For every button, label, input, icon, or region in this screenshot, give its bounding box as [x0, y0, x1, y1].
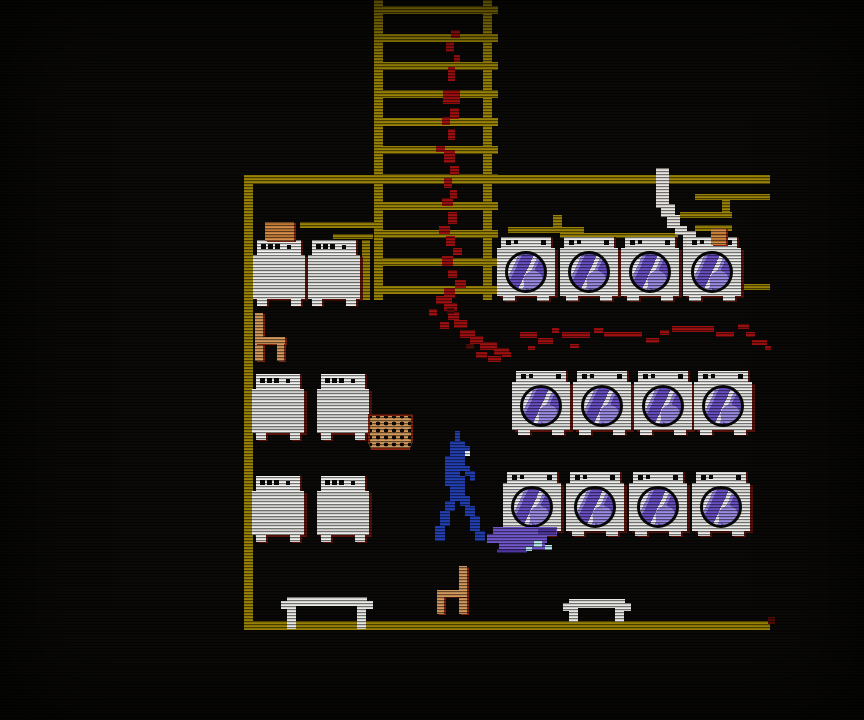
washer-body — [317, 491, 369, 535]
washer-button — [604, 240, 609, 245]
blood-splatter — [439, 226, 450, 234]
blood-splatter — [476, 352, 487, 358]
ladder-rung — [374, 174, 498, 182]
ladder-rung — [374, 286, 498, 294]
wooden-chair — [255, 313, 285, 361]
washer-foot — [606, 530, 618, 536]
washer-foot — [723, 295, 735, 301]
washer-foot — [537, 295, 549, 301]
water-pipe-segment — [333, 234, 373, 239]
blood-splatter — [660, 330, 669, 335]
washer-foot — [566, 295, 578, 301]
washer-foot — [732, 530, 744, 536]
washer-foot — [312, 299, 322, 306]
washing-machine-front-loader — [694, 371, 752, 435]
washer-button — [590, 374, 594, 378]
washer-control-panel — [625, 237, 675, 248]
washer-control-panel — [577, 371, 627, 382]
washing-machine-front-loader — [497, 237, 555, 301]
washer-button — [738, 374, 743, 379]
washer-door-window — [574, 486, 616, 528]
detergent-box — [711, 228, 726, 245]
blood-splatter — [448, 212, 457, 224]
washer-button — [569, 240, 574, 245]
washer-button — [700, 240, 704, 244]
washing-machine-top-loader — [253, 240, 305, 306]
washer-foot — [290, 433, 300, 440]
washer-button — [339, 378, 344, 383]
drain-pipe-segment — [656, 168, 669, 208]
player-character — [435, 431, 485, 541]
washer-button — [665, 240, 670, 245]
washer-button — [651, 374, 655, 378]
washer-control-panel — [256, 374, 300, 389]
washer-foot — [627, 295, 639, 301]
washer-foot — [698, 530, 710, 536]
washing-machine-top-loader — [317, 374, 369, 440]
chair-seat — [437, 590, 467, 597]
washer-button — [512, 475, 517, 480]
washer-button — [692, 240, 697, 245]
washer-button — [736, 475, 741, 480]
washing-machine-top-loader — [317, 476, 369, 542]
washer-foot — [355, 433, 365, 440]
washer-button — [342, 245, 346, 249]
washer-button — [610, 475, 615, 480]
washer-button — [506, 240, 511, 245]
washer-button — [287, 245, 291, 249]
blood-splatter — [451, 30, 460, 38]
washer-button — [339, 480, 344, 485]
folding-bench — [563, 599, 631, 622]
blood-splatter — [594, 328, 603, 333]
blood-splatter — [672, 326, 714, 332]
blood-splatter — [552, 328, 559, 333]
washer-foot — [635, 530, 647, 536]
washer-door-window — [642, 385, 684, 427]
ladder-rung — [374, 202, 498, 210]
washer-button — [268, 244, 273, 249]
chair-seat — [255, 337, 285, 344]
washer-button — [617, 374, 622, 379]
washer-button — [638, 240, 642, 244]
washer-control-panel — [516, 371, 566, 382]
washer-button — [260, 378, 265, 383]
washer-foot — [613, 429, 625, 435]
ladder-rung — [374, 34, 498, 42]
washer-door-window — [505, 251, 547, 293]
washer-foot — [640, 429, 652, 435]
washer-button — [583, 475, 587, 479]
blood-splatter — [716, 332, 734, 337]
washer-button — [316, 244, 321, 249]
washer-button — [727, 240, 732, 245]
washer-control-panel — [256, 476, 300, 491]
washer-button — [275, 244, 280, 249]
washer-body — [252, 389, 304, 433]
washer-control-panel — [501, 237, 551, 248]
washer-control-panel — [698, 371, 748, 382]
blood-splatter — [448, 270, 457, 278]
washer-button — [323, 244, 328, 249]
washer-button — [521, 374, 526, 379]
soap-suds — [534, 541, 542, 547]
washing-machine-front-loader — [560, 237, 618, 301]
water-pipe-segment — [680, 212, 732, 218]
chair-leg — [437, 597, 444, 614]
soap-suds — [545, 545, 552, 550]
blood-splatter — [450, 166, 459, 175]
washer-body — [308, 255, 360, 299]
washer-foot — [256, 535, 266, 542]
washer-button — [547, 475, 552, 480]
bench-top — [569, 599, 625, 608]
washer-button — [267, 378, 272, 383]
blood-splatter — [448, 129, 455, 140]
blood-splatter — [442, 256, 453, 266]
washing-machine-front-loader — [621, 237, 679, 301]
washer-button — [582, 374, 587, 379]
character-collar-pixel — [465, 451, 470, 456]
blood-splatter — [528, 346, 535, 350]
washer-button — [577, 240, 581, 244]
washer-button — [286, 379, 290, 383]
blood-splatter — [440, 322, 449, 329]
washing-machine-front-loader — [692, 472, 750, 536]
blood-splatter — [604, 332, 642, 337]
blood-splatter — [429, 309, 437, 316]
washer-foot — [518, 429, 530, 435]
washer-button — [267, 480, 272, 485]
washer-control-panel — [570, 472, 620, 483]
blood-splatter — [738, 324, 749, 329]
wooden-chair — [437, 566, 467, 614]
blood-splatter — [752, 340, 767, 345]
washing-machine-front-loader — [629, 472, 687, 536]
washer-button — [330, 244, 335, 249]
character-body-pixel — [480, 536, 485, 541]
washer-button — [541, 240, 546, 245]
washing-machine-front-loader — [573, 371, 631, 435]
game-screen[interactable] — [0, 0, 864, 720]
bench-leg — [569, 608, 578, 622]
bench-leg — [357, 606, 366, 629]
washer-foot — [579, 429, 591, 435]
washer-foot — [572, 530, 584, 536]
folding-bench — [281, 597, 373, 629]
washer-button — [701, 475, 706, 480]
washing-machine-front-loader — [566, 472, 624, 536]
blood-splatter — [562, 332, 590, 338]
blood-splatter — [538, 338, 553, 344]
washer-foot — [257, 299, 267, 306]
blood-splatter — [442, 198, 453, 206]
laundry-basket — [368, 414, 413, 450]
washer-button — [556, 374, 561, 379]
blood-splatter — [646, 338, 659, 343]
blood-splatter — [746, 332, 755, 337]
washer-foot — [321, 535, 331, 542]
washer-door-window — [629, 251, 671, 293]
washing-machine-front-loader — [634, 371, 692, 435]
washer-button — [261, 244, 266, 249]
ladder-rung — [374, 90, 498, 98]
washer-control-panel — [257, 240, 301, 255]
blood-splatter — [444, 178, 452, 188]
water-pipe-segment — [695, 194, 770, 200]
washer-control-panel — [507, 472, 557, 483]
bench-leg — [615, 608, 624, 622]
washer-button — [646, 475, 650, 479]
washer-door-window — [568, 251, 610, 293]
washer-door-window — [700, 486, 742, 528]
soap-puddle-shadow — [497, 549, 527, 553]
washer-control-panel — [638, 371, 688, 382]
washer-foot — [552, 429, 564, 435]
washer-foot — [600, 295, 612, 301]
blood-splatter — [520, 332, 537, 338]
washer-door-window — [702, 385, 744, 427]
washer-button — [703, 374, 708, 379]
washer-button — [260, 480, 265, 485]
blood-splatter — [444, 150, 455, 163]
washer-button — [351, 379, 355, 383]
washer-foot — [291, 299, 301, 306]
washing-machine-front-loader — [683, 237, 741, 301]
washer-foot — [669, 530, 681, 536]
washer-button — [286, 481, 290, 485]
washer-control-panel — [312, 240, 356, 255]
washer-door-window — [520, 385, 562, 427]
blood-splatter — [446, 42, 454, 52]
washer-foot — [674, 429, 686, 435]
character-body-pixel — [440, 536, 445, 541]
washer-door-window — [511, 486, 553, 528]
water-pipe-segment — [362, 240, 370, 300]
blood-splatter — [488, 356, 501, 362]
washer-control-panel — [633, 472, 683, 483]
character-body-pixel — [470, 476, 475, 481]
washer-button — [514, 240, 518, 244]
washer-button — [351, 481, 355, 485]
blood-splatter — [455, 280, 466, 288]
washer-control-panel — [564, 237, 614, 248]
water-pipe-segment — [300, 222, 375, 228]
washer-button — [274, 378, 279, 383]
washer-button — [520, 475, 524, 479]
washer-foot — [290, 535, 300, 542]
washer-foot — [734, 429, 746, 435]
washer-button — [638, 475, 643, 480]
blood-splatter — [454, 55, 460, 62]
soap-suds — [526, 547, 532, 551]
blood-splatter-dark — [768, 617, 775, 624]
washer-foot — [355, 535, 365, 542]
blood-splatter — [502, 352, 511, 357]
blood-splatter — [442, 117, 450, 125]
washer-button — [529, 374, 533, 378]
blood-splatter — [448, 67, 455, 81]
ladder-rung — [374, 258, 498, 266]
ladder-rung — [374, 6, 498, 14]
blood-splatter — [443, 90, 460, 104]
washer-door-window — [637, 486, 679, 528]
washer-foot — [689, 295, 701, 301]
blood-splatter-dark — [466, 344, 474, 349]
washer-button — [709, 475, 713, 479]
washer-body — [252, 491, 304, 535]
washing-machine-top-loader — [308, 240, 360, 306]
washer-button — [678, 374, 683, 379]
washing-machine-top-loader — [252, 476, 304, 542]
washer-foot — [321, 433, 331, 440]
washer-button — [325, 480, 330, 485]
character-body-pixel — [445, 521, 450, 526]
blood-splatter — [446, 236, 455, 246]
washer-button — [643, 374, 648, 379]
blood-splatter — [454, 320, 467, 328]
washer-button — [575, 475, 580, 480]
room-ceiling — [244, 175, 770, 184]
washer-door-window — [691, 251, 733, 293]
character-body-pixel — [450, 506, 455, 511]
blood-splatter — [450, 108, 459, 119]
detergent-box — [265, 222, 294, 241]
blood-splatter-dark — [447, 308, 454, 314]
washer-control-panel — [321, 476, 365, 491]
washer-button — [274, 480, 279, 485]
laundry-room-scene[interactable] — [0, 0, 864, 720]
washing-machine-top-loader — [252, 374, 304, 440]
chair-leg — [277, 344, 284, 361]
ladder-rung — [374, 230, 498, 238]
washer-button — [325, 378, 330, 383]
ladder-rung — [374, 62, 498, 70]
blood-splatter — [570, 344, 579, 348]
blood-splatter — [453, 248, 462, 255]
washer-button — [630, 240, 635, 245]
washer-foot — [346, 299, 356, 306]
washer-control-panel — [696, 472, 746, 483]
soap-puddle-shadow — [538, 529, 556, 534]
washer-button — [332, 378, 337, 383]
ladder-rung — [374, 118, 498, 126]
blood-splatter — [765, 346, 771, 350]
washer-foot — [700, 429, 712, 435]
washing-machine-front-loader — [512, 371, 570, 435]
washer-foot — [256, 433, 266, 440]
washer-door-window — [581, 385, 623, 427]
washer-foot — [503, 295, 515, 301]
washer-button — [332, 480, 337, 485]
washer-button — [673, 475, 678, 480]
washer-body — [253, 255, 305, 299]
washer-foot — [661, 295, 673, 301]
washer-button — [711, 374, 715, 378]
bench-leg — [287, 606, 296, 629]
washer-body — [317, 389, 369, 433]
bench-top — [287, 597, 367, 606]
washer-control-panel — [321, 374, 365, 389]
